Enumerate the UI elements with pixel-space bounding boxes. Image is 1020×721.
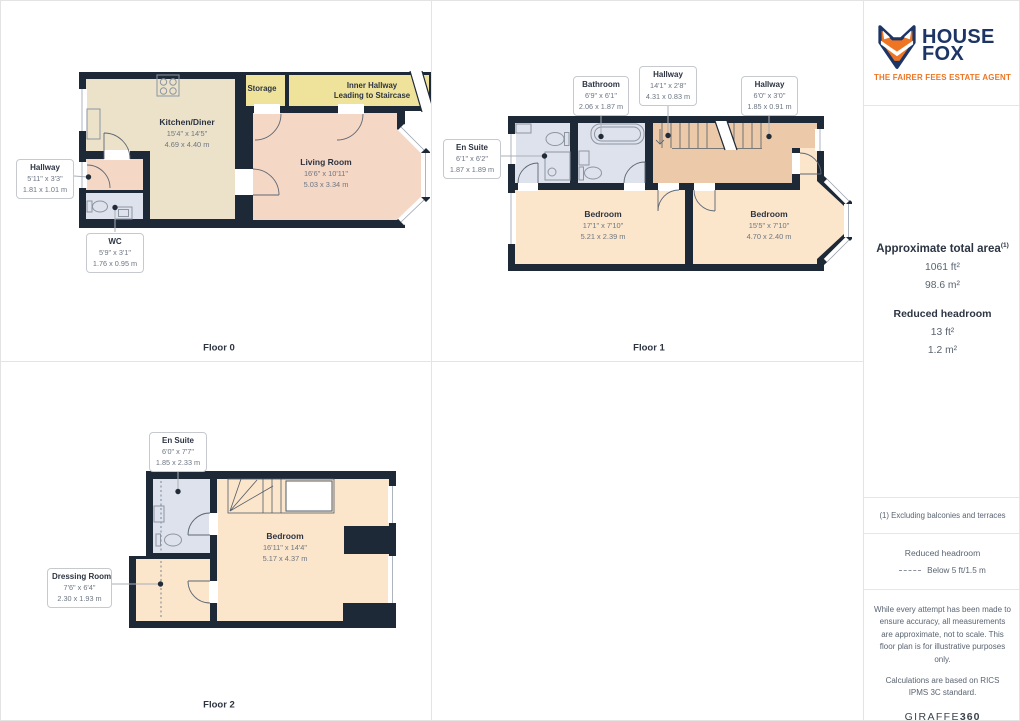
room-dims-metric: 1.85 x 0.91 m [746,102,793,111]
floor1-bathroom-area [578,123,645,183]
floorplan-page: Kitchen/Diner 15'4" x 14'5" 4.69 x 4.40 … [0,0,1020,721]
floor2-dressing-area [136,559,210,621]
room-label-en-suite: En Suite 6'0" x 7'7" 1.85 x 2.33 m [149,432,207,472]
room-dims-metric: 5.03 x 3.34 m [300,180,351,190]
room-name: Inner Hallway [334,81,410,91]
room-name: Bedroom [747,209,792,220]
room-label-bedroom: Bedroom 16'11" x 14'4" 5.17 x 4.37 m [263,531,308,563]
room-label-hallway: Hallway 5'11" x 3'3" 1.81 x 1.01 m [16,159,74,199]
total-area-metric: 98.6 m² [864,280,1020,291]
dashed-line-icon [899,570,921,571]
room-name: Bathroom [578,80,624,90]
room-dims-metric: 4.69 x 4.40 m [159,140,214,150]
reduced-headroom-metric: 1.2 m² [864,345,1020,356]
footnote-text: (1) Excluding balconies and terraces [864,498,1020,520]
floor-0-plan: Kitchen/Diner 15'4" x 14'5" 4.69 x 4.40 … [1,1,431,361]
provider-name: GIRAFFE [905,711,960,721]
room-label-inner-hallway: Inner Hallway Leading to Staircase [334,81,410,101]
floor-1-caption: Floor 1 [633,343,665,354]
room-name: En Suite [448,143,496,153]
floor-1-plan: Bathroom 6'9" x 6'1" 2.06 x 1.87 m Hallw… [432,1,863,361]
provider-suffix: 360 [960,711,981,721]
room-dims-imperial: 14'1" x 2'8" [644,81,692,90]
room-dims-imperial: 6'1" x 6'2" [448,154,496,163]
room-dims-imperial: 15'4" x 14'5" [159,129,214,139]
room-name: Kitchen/Diner [159,117,214,128]
floor1-ensuite-area [515,123,570,183]
room-label-en-suite: En Suite 6'1" x 6'2" 1.87 x 1.89 m [443,139,501,179]
room-label-living-room: Living Room 16'6" x 10'11" 5.03 x 3.34 m [300,157,351,189]
reduced-headroom-imperial: 13 ft² [864,327,1020,338]
standards-text: Calculations are based on RICS IPMS 3C s… [876,675,1009,700]
footnote-marker: (1) [1001,242,1009,249]
room-dims-imperial: 16'11" x 14'4" [263,543,308,553]
panel-divider-horizontal [1,361,863,362]
room-note: Leading to Staircase [334,91,410,101]
floor-1-drawing [432,1,863,361]
room-dims-metric: 1.81 x 1.01 m [21,185,69,194]
provider-logo: GIRAFFE360 [864,711,1020,721]
area-summary-section: Approximate total area(1) 1061 ft² 98.6 … [864,106,1020,498]
room-label-hallway-long: Hallway 14'1" x 2'8" 4.31 x 0.83 m [639,66,697,106]
floor-0-caption: Floor 0 [203,343,235,354]
total-area-imperial: 1061 ft² [864,262,1020,273]
brand-tagline: THE FAIRER FEES ESTATE AGENT [864,73,1020,82]
room-dims-imperial: 16'6" x 10'11" [300,169,351,179]
room-label-dressing-room: Dressing Room 7'6" x 6'4" 2.30 x 1.93 m [47,568,112,608]
room-dims-metric: 4.31 x 0.83 m [644,92,692,101]
legend-heading: Reduced headroom [864,534,1020,558]
room-label-bedroom-left: Bedroom 17'1" x 7'10" 5.21 x 2.39 m [581,209,626,241]
footnote-section: (1) Excluding balconies and terraces [864,498,1020,534]
room-name: Living Room [300,157,351,168]
room-dims-metric: 2.06 x 1.87 m [578,102,624,111]
room-dims-imperial: 6'0" x 7'7" [154,447,202,456]
disclaimer-text: While every attempt has been made to ens… [873,604,1012,666]
floor0-hallway-area [86,159,143,190]
room-dims-imperial: 6'9" x 6'1" [578,91,624,100]
legend-label: Below 5 ft/1.5 m [927,566,986,575]
floor-2-plan: En Suite 6'0" x 7'7" 1.85 x 2.33 m Dress… [1,362,431,721]
room-name: En Suite [154,436,202,446]
reduced-headroom-heading: Reduced headroom [864,308,1020,320]
room-dims-metric: 2.30 x 1.93 m [52,594,107,603]
room-name: Dressing Room [52,572,107,582]
total-area-heading-text: Approximate total area [876,243,1001,255]
disclaimer-section: While every attempt has been made to ens… [864,590,1020,721]
room-label-kitchen-diner: Kitchen/Diner 15'4" x 14'5" 4.69 x 4.40 … [159,117,214,149]
room-name: Bedroom [263,531,308,542]
room-name: Hallway [21,163,69,173]
room-label-hallway-small: Hallway 6'0" x 3'0" 1.85 x 0.91 m [741,76,798,116]
room-name: WC [91,237,139,247]
room-name: Hallway [644,70,692,80]
room-dims-metric: 5.17 x 4.37 m [263,554,308,564]
room-name: Storage [247,84,276,94]
room-dims-imperial: 6'0" x 3'0" [746,91,793,100]
room-label-bathroom: Bathroom 6'9" x 6'1" 2.06 x 1.87 m [573,76,629,116]
room-dims-imperial: 5'11" x 3'3" [21,174,69,183]
room-dims-imperial: 7'6" x 6'4" [52,583,107,592]
legend-row: Below 5 ft/1.5 m [864,566,1020,575]
floor-2-drawing [1,362,431,721]
house-fox-logo-icon [875,25,919,71]
room-label-bedroom-right: Bedroom 15'5" x 7'10" 4.70 x 2.40 m [747,209,792,241]
logo-section: HOUSE FOX THE FAIRER FEES ESTATE AGENT [864,1,1020,106]
info-sidebar: HOUSE FOX THE FAIRER FEES ESTATE AGENT A… [863,1,1020,721]
room-label-wc: WC 5'9" x 3'1" 1.76 x 0.95 m [86,233,144,273]
room-dims-imperial: 17'1" x 7'10" [581,221,626,231]
room-name: Bedroom [581,209,626,220]
floor-2-caption: Floor 2 [203,700,235,711]
brand-name-line2: FOX [922,46,995,63]
room-dims-imperial: 5'9" x 3'1" [91,248,139,257]
room-dims-metric: 4.70 x 2.40 m [747,232,792,242]
brand-name: HOUSE FOX [922,29,995,64]
total-area-heading: Approximate total area(1) [864,242,1020,255]
room-dims-imperial: 15'5" x 7'10" [747,221,792,231]
room-dims-metric: 1.76 x 0.95 m [91,259,139,268]
room-dims-metric: 1.87 x 1.89 m [448,165,496,174]
legend-section: Reduced headroom Below 5 ft/1.5 m [864,534,1020,590]
room-label-storage: Storage [247,84,276,94]
room-dims-metric: 5.21 x 2.39 m [581,232,626,242]
room-name: Hallway [746,80,793,90]
room-dims-metric: 1.85 x 2.33 m [154,458,202,467]
